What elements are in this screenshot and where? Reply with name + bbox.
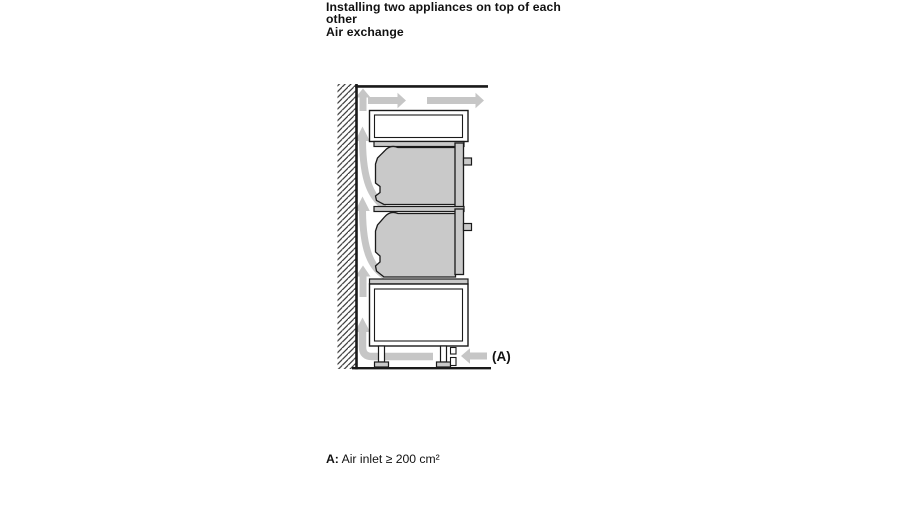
caption-text: Air inlet ≥ 200 cm² [342,452,440,466]
appliance-upper-handle [464,158,472,165]
appliance-lower-door [455,209,464,275]
plinth-vent-clip-top [451,348,457,355]
top-vent-compartment [370,111,469,142]
air-inlet-arrow [461,348,487,363]
wall-hatching [338,84,356,369]
cabinet-foot-right-base [437,362,451,367]
heading-subtitle: Air exchange [326,26,561,38]
plinth-vent-clip-bottom [451,358,457,366]
heading-title-line2: other [326,13,561,25]
installation-diagram: (A) [330,80,530,380]
section-heading: Installing two appliances on top of each… [326,1,561,38]
cabinet-foot-right [441,346,447,362]
appliance-upper-body [376,146,456,204]
shelf-bar-bottom [370,279,469,284]
appliance-upper-door [455,143,464,208]
airflow-right-arrow-inner [368,93,406,108]
appliance-upper [376,143,472,208]
appliance-lower-handle [464,224,472,231]
shelf-bar-top [374,142,464,147]
appliance-lower-body [376,212,456,277]
appliance-lower [376,209,472,277]
airflow-up-arrow-mid-shaft [360,276,367,297]
caption-term: A: [326,452,339,466]
airflow-right-arrow-outer [427,93,484,108]
air-inlet-label: (A) [492,349,511,364]
shelf-bar-middle [374,207,464,212]
heading-title-line1: Installing two appliances on top of each [326,1,561,13]
base-cabinet-outer [370,284,469,346]
cabinet-foot-left-base [375,362,389,367]
figure-caption: A: Air inlet ≥ 200 cm² [326,452,440,466]
cabinet-foot-left [379,346,385,362]
